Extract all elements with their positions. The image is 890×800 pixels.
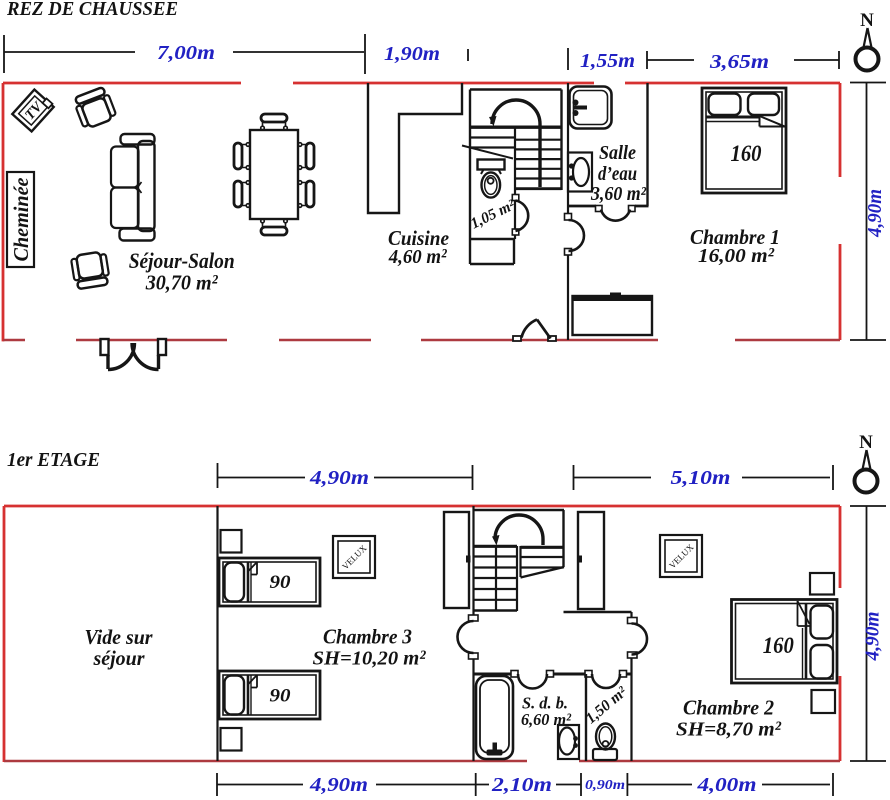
svg-text:1er ETAGE: 1er ETAGE [7, 449, 100, 471]
svg-text:4,90m: 4,90m [309, 774, 368, 796]
svg-text:Chambre 2: Chambre 2 [683, 696, 774, 720]
svg-text:SH=10,20 m²: SH=10,20 m² [313, 648, 427, 670]
svg-text:SH=8,70 m²: SH=8,70 m² [676, 719, 782, 741]
svg-text:6,60 m²: 6,60 m² [521, 710, 572, 729]
svg-text:4,90m: 4,90m [864, 189, 886, 238]
svg-text:90: 90 [270, 572, 292, 593]
svg-text:N: N [860, 10, 874, 31]
svg-text:d’eau: d’eau [598, 163, 637, 185]
svg-text:7,00m: 7,00m [157, 42, 215, 64]
svg-text:1,55m: 1,55m [580, 50, 635, 72]
svg-text:4,90m: 4,90m [309, 467, 369, 489]
svg-text:Séjour-Salon: Séjour-Salon [129, 248, 235, 273]
svg-text:3,65m: 3,65m [709, 51, 769, 73]
svg-text:5,10m: 5,10m [671, 467, 731, 489]
svg-text:1,90m: 1,90m [384, 43, 440, 65]
svg-text:Salle: Salle [599, 142, 636, 164]
svg-text:160: 160 [763, 633, 794, 658]
svg-text:3,60 m²: 3,60 m² [590, 183, 647, 205]
svg-text:4,00m: 4,00m [696, 774, 756, 796]
svg-text:30,70 m²: 30,70 m² [145, 271, 219, 295]
svg-text:90: 90 [270, 686, 292, 707]
svg-text:16,00 m²: 16,00 m² [698, 245, 775, 267]
svg-text:4,90m: 4,90m [862, 612, 884, 662]
svg-text:séjour: séjour [93, 646, 146, 670]
svg-text:4,60 m²: 4,60 m² [388, 246, 448, 268]
svg-text:Cheminée: Cheminée [9, 178, 33, 262]
svg-text:0,90m: 0,90m [585, 778, 625, 793]
svg-text:Chambre 3: Chambre 3 [323, 625, 412, 649]
svg-text:2,10m: 2,10m [491, 774, 552, 796]
svg-text:REZ DE CHAUSSEE: REZ DE CHAUSSEE [6, 0, 178, 20]
svg-text:160: 160 [731, 141, 762, 166]
svg-text:N: N [859, 432, 873, 453]
